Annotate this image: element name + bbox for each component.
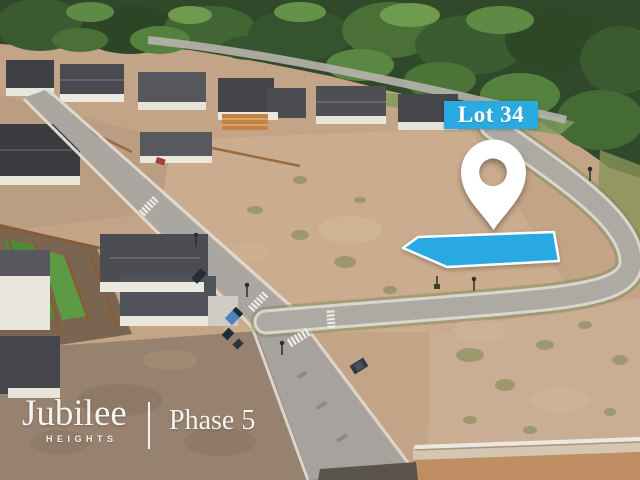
aerial-photo: Lot 34 Jubilee HEIGHTS Phase 5 xyxy=(0,0,640,480)
phase-label: Phase 5 xyxy=(169,407,255,435)
brand-divider xyxy=(148,402,150,449)
lot-label: Lot 34 xyxy=(444,101,538,129)
brand-logo: Jubilee HEIGHTS Phase 5 xyxy=(0,392,300,462)
brand-name: Jubilee xyxy=(22,396,127,432)
utility-box xyxy=(434,284,440,289)
brand-subtitle: HEIGHTS xyxy=(46,434,118,444)
